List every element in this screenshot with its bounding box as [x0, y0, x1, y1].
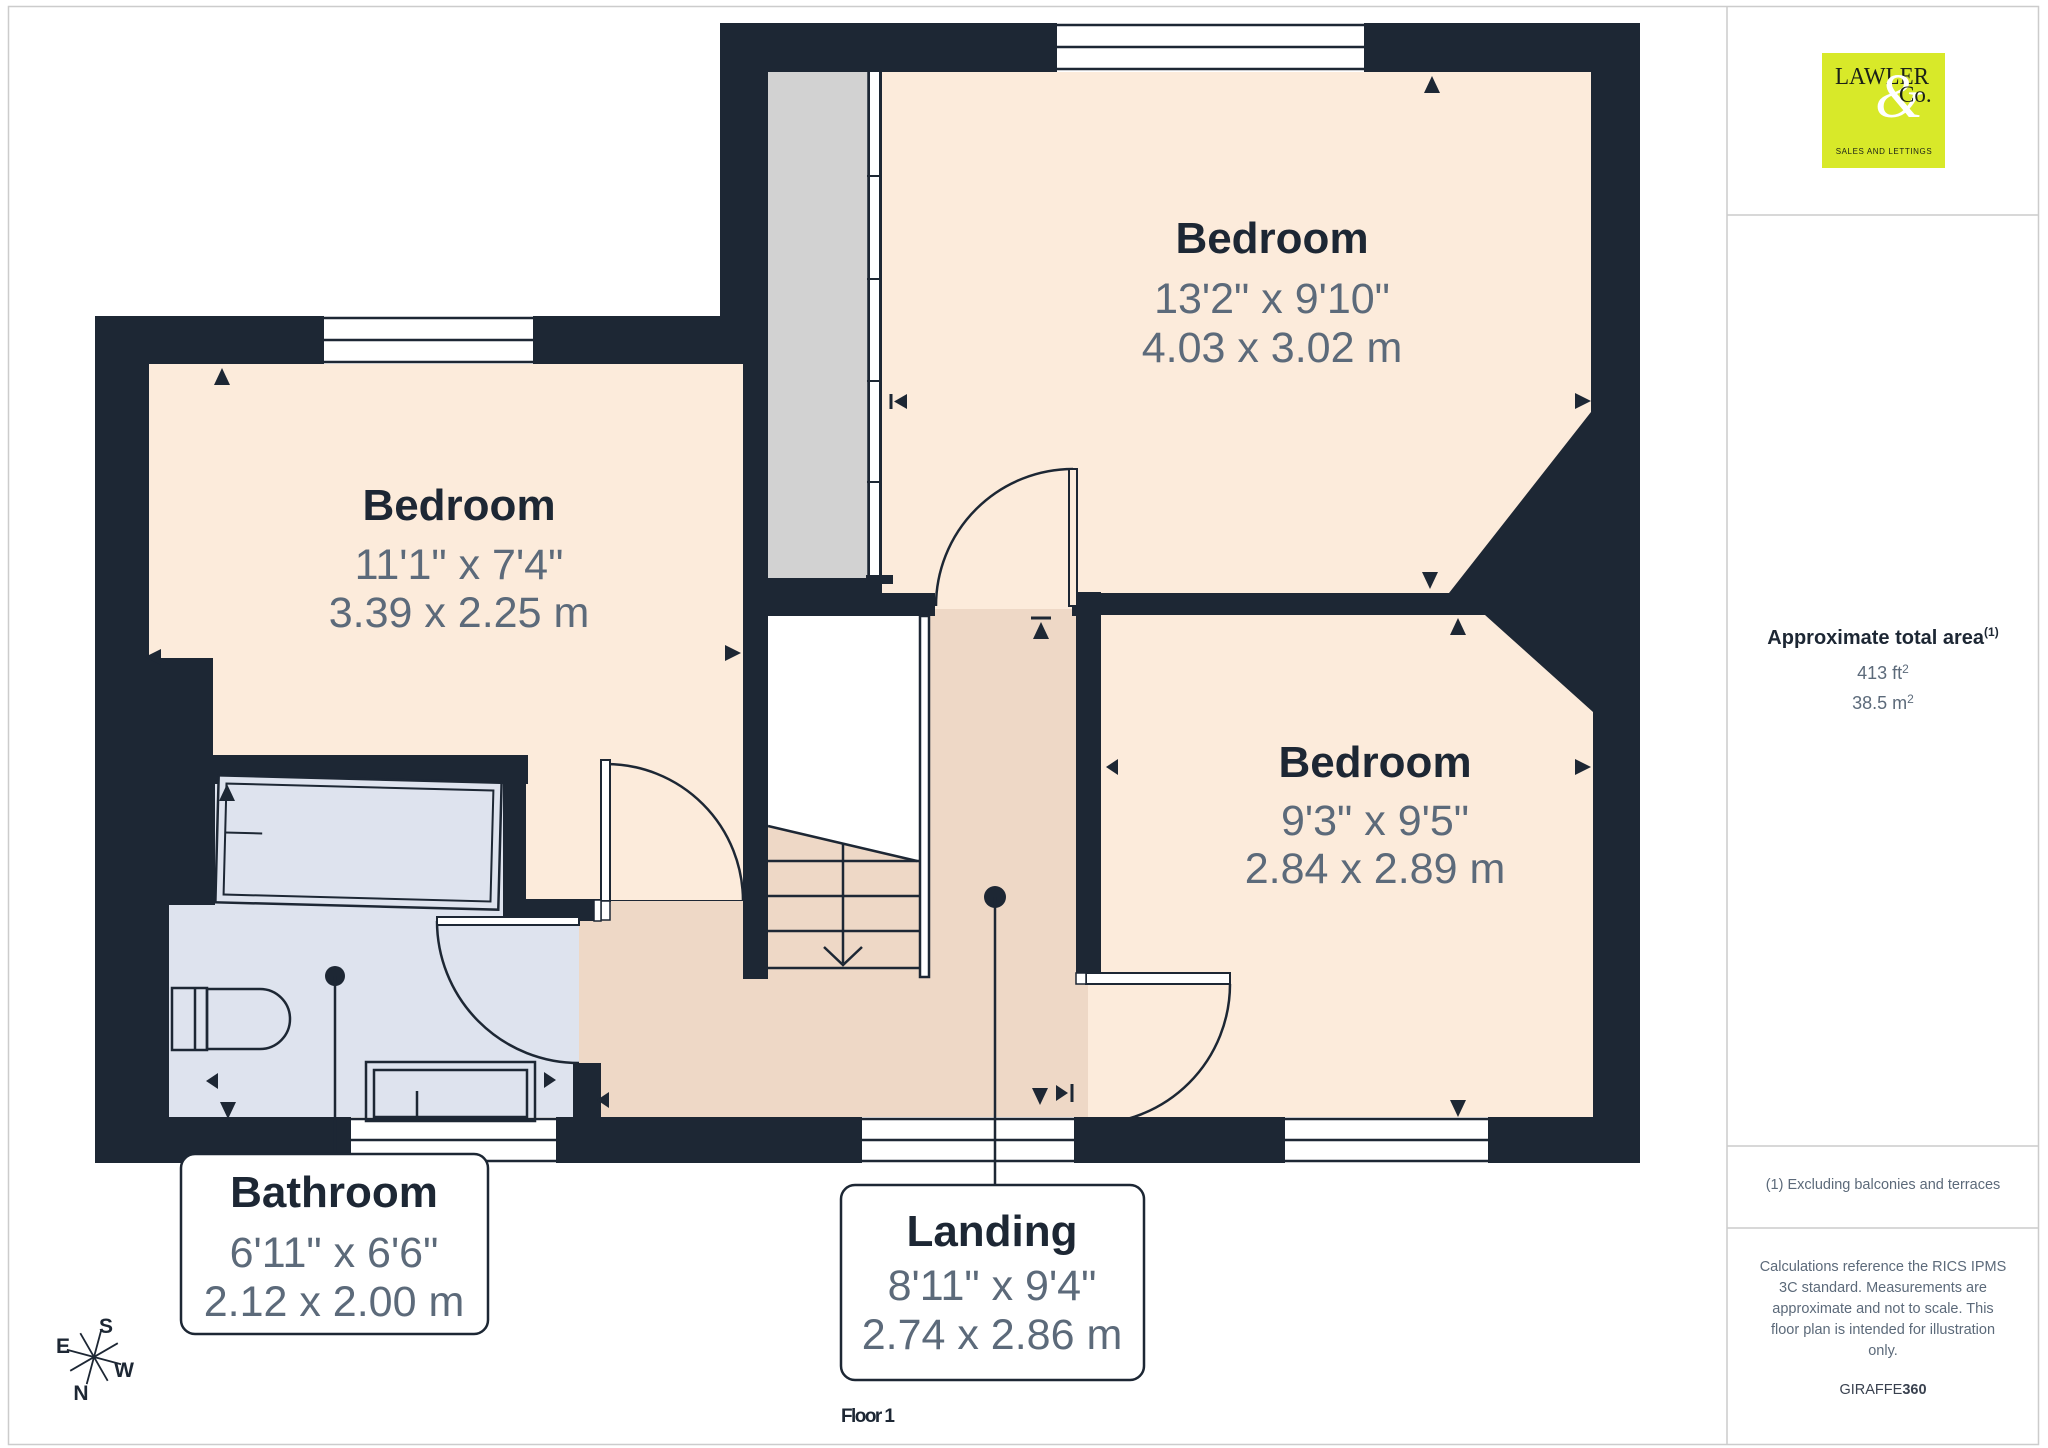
svg-text:N: N — [73, 1382, 88, 1405]
svg-text:E: E — [56, 1335, 70, 1358]
svg-text:6'11" x 6'6": 6'11" x 6'6" — [230, 1229, 439, 1277]
svg-text:Bedroom: Bedroom — [362, 481, 555, 530]
svg-text:Calculations reference the RIC: Calculations reference the RICS IPMS — [1760, 1259, 2007, 1275]
svg-text:2.84 x 2.89 m: 2.84 x 2.89 m — [1245, 845, 1506, 893]
svg-text:Landing: Landing — [906, 1207, 1077, 1256]
svg-text:11'1" x 7'4": 11'1" x 7'4" — [355, 541, 564, 589]
svg-text:13'2" x 9'10": 13'2" x 9'10" — [1154, 275, 1390, 323]
svg-text:Bedroom: Bedroom — [1278, 738, 1471, 787]
svg-text:Floor 1: Floor 1 — [841, 1406, 895, 1427]
svg-text:Co.: Co. — [1899, 82, 1932, 107]
svg-text:3C standard. Measurements are: 3C standard. Measurements are — [1779, 1280, 1987, 1296]
svg-text:W: W — [114, 1359, 134, 1382]
svg-text:9'3" x 9'5": 9'3" x 9'5" — [1281, 797, 1469, 845]
svg-text:approximate and not to scale.: approximate and not to scale. This — [1772, 1301, 1993, 1317]
svg-text:SALES AND LETTINGS: SALES AND LETTINGS — [1836, 147, 1933, 156]
svg-text:2.74 x 2.86 m: 2.74 x 2.86 m — [862, 1311, 1123, 1359]
svg-text:38.5 m2: 38.5 m2 — [1852, 692, 1914, 713]
svg-text:413 ft2: 413 ft2 — [1857, 662, 1909, 683]
svg-text:Bedroom: Bedroom — [1175, 214, 1368, 263]
svg-text:Approximate total area(1): Approximate total area(1) — [1767, 625, 1998, 649]
svg-text:8'11" x 9'4": 8'11" x 9'4" — [888, 1262, 1097, 1310]
svg-text:Bathroom: Bathroom — [230, 1168, 438, 1217]
svg-text:4.03 x 3.02 m: 4.03 x 3.02 m — [1142, 324, 1403, 372]
svg-text:2.12 x 2.00 m: 2.12 x 2.00 m — [204, 1278, 465, 1326]
svg-text:floor plan is intended for ill: floor plan is intended for illustration — [1771, 1322, 1995, 1338]
svg-text:GIRAFFE360: GIRAFFE360 — [1839, 1382, 1926, 1398]
svg-text:only.: only. — [1868, 1343, 1898, 1359]
svg-text:S: S — [99, 1315, 113, 1338]
svg-text:3.39 x 2.25 m: 3.39 x 2.25 m — [329, 589, 590, 637]
svg-text:(1) Excluding balconies and te: (1) Excluding balconies and terraces — [1766, 1177, 2001, 1193]
